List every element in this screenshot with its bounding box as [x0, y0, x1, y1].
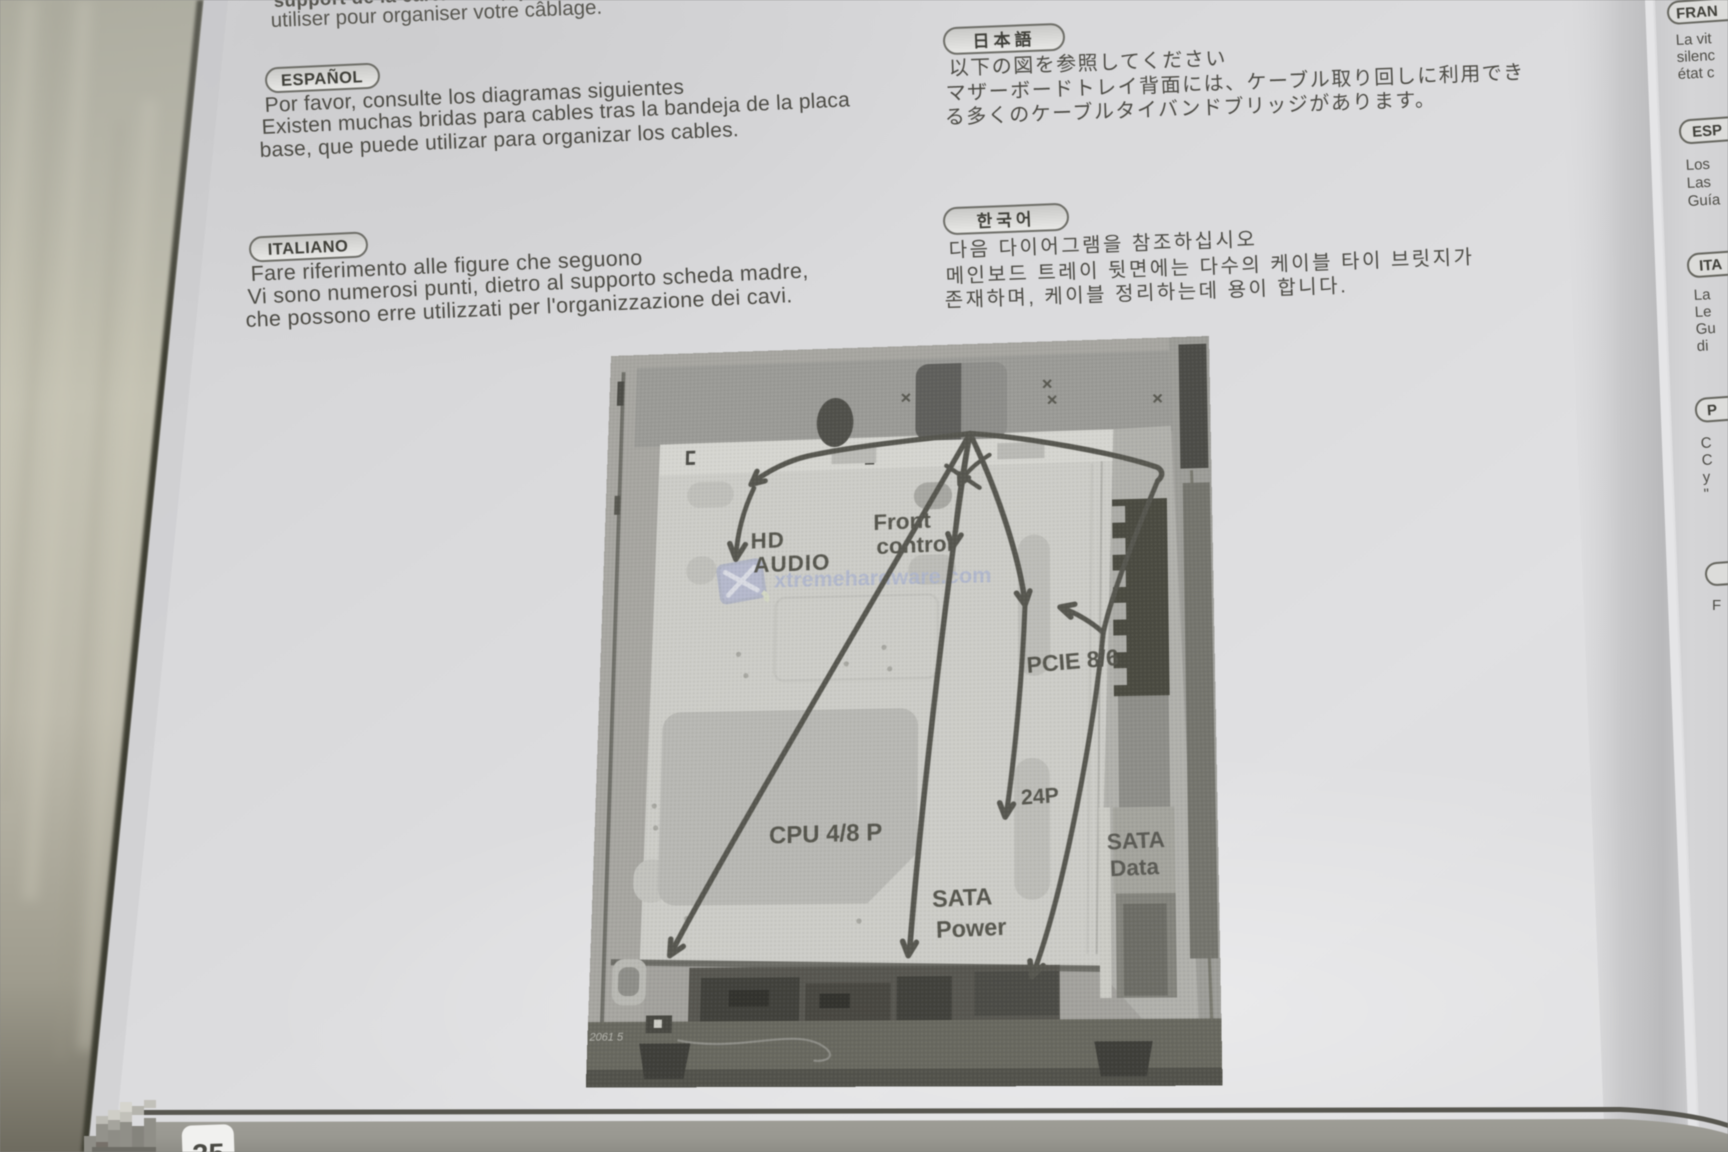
svg-text:35: 35 [192, 1138, 225, 1152]
svg-text:ESP: ESP [1692, 122, 1723, 141]
svg-text:état c: état c [1677, 64, 1715, 83]
svg-text:di: di [1696, 337, 1709, 355]
svg-text:ITALIANO: ITALIANO [267, 237, 348, 259]
svg-text:日本語: 日本語 [972, 29, 1036, 51]
svg-text:La vit: La vit [1675, 30, 1713, 49]
svg-text:한국어: 한국어 [976, 210, 1036, 231]
svg-text:La: La [1693, 286, 1711, 304]
svg-text:Guía: Guía [1687, 191, 1721, 210]
svg-text:Gu: Gu [1695, 320, 1716, 338]
svg-text:Le: Le [1694, 303, 1712, 321]
svg-text:FRAN: FRAN [1676, 3, 1719, 23]
svg-text:silenc: silenc [1676, 47, 1716, 66]
svg-text:Los: Los [1685, 156, 1710, 174]
svg-text:F: F [1712, 597, 1721, 614]
svg-text:P: P [1706, 402, 1717, 420]
svg-text:": " [1703, 486, 1709, 503]
svg-text:y: y [1702, 469, 1711, 486]
svg-text:ITA: ITA [1699, 256, 1723, 275]
svg-text:C: C [1701, 451, 1713, 469]
svg-text:C: C [1700, 434, 1712, 452]
svg-text:Las: Las [1686, 174, 1711, 192]
